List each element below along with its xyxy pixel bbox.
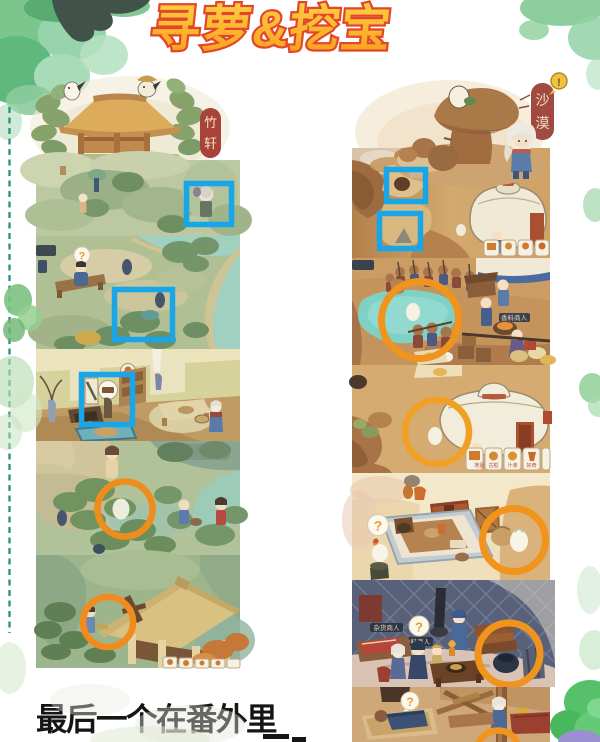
svg-text:?: ? — [374, 518, 383, 534]
svg-text:?: ? — [406, 695, 413, 709]
svg-text:寻萝&挖宝: 寻萝&挖宝 — [147, 1, 394, 57]
svg-text:古桩: 古桩 — [488, 462, 498, 469]
svg-text:竹: 竹 — [204, 115, 217, 130]
svg-text:地鼠: 地鼠 — [475, 462, 485, 469]
svg-text:汁液: 汁液 — [507, 462, 517, 469]
svg-text:?: ? — [415, 620, 423, 635]
svg-text:沙: 沙 — [536, 92, 550, 108]
svg-text:轩: 轩 — [204, 136, 217, 151]
svg-text:香料商人: 香料商人 — [501, 313, 528, 322]
svg-text:好奇: 好奇 — [526, 462, 536, 469]
svg-text:杂货商人: 杂货商人 — [374, 623, 401, 632]
svg-text:?: ? — [79, 251, 86, 263]
svg-text:!: ! — [557, 77, 561, 89]
svg-text:漠: 漠 — [536, 115, 550, 131]
